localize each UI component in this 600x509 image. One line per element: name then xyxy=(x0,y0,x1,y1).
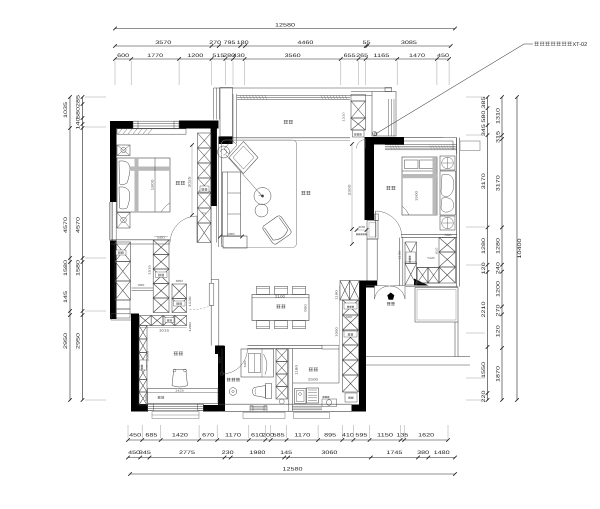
svg-text:1770: 1770 xyxy=(147,53,163,59)
svg-text:900: 900 xyxy=(303,304,307,312)
svg-text:1170: 1170 xyxy=(225,433,241,439)
svg-text:12580: 12580 xyxy=(283,467,303,473)
svg-text:10400: 10400 xyxy=(517,238,523,258)
svg-text:265: 265 xyxy=(356,53,368,59)
svg-text:1130: 1130 xyxy=(397,250,401,260)
svg-text:3560: 3560 xyxy=(285,53,301,59)
svg-text:2000: 2000 xyxy=(146,351,150,362)
svg-text:1800: 1800 xyxy=(151,179,155,190)
svg-text:595: 595 xyxy=(355,433,367,439)
svg-text:3300: 3300 xyxy=(348,184,352,195)
svg-text:1620: 1620 xyxy=(418,433,434,439)
svg-text:1870: 1870 xyxy=(496,366,502,382)
svg-text:900: 900 xyxy=(138,283,145,287)
svg-text:270: 270 xyxy=(209,40,221,46)
svg-text:345: 345 xyxy=(139,450,151,456)
svg-text:4570: 4570 xyxy=(76,217,82,233)
svg-text:400: 400 xyxy=(358,225,366,229)
svg-text:1200: 1200 xyxy=(187,53,203,59)
svg-text:230: 230 xyxy=(222,450,234,456)
svg-text:385: 385 xyxy=(481,96,487,108)
svg-text:1130: 1130 xyxy=(188,296,192,307)
svg-text:685: 685 xyxy=(145,433,157,439)
svg-text:240: 240 xyxy=(496,262,502,274)
svg-text:450: 450 xyxy=(437,53,449,59)
svg-text:600: 600 xyxy=(176,279,184,283)
svg-text:1310: 1310 xyxy=(496,108,502,124)
svg-text:2210: 2210 xyxy=(481,301,487,317)
svg-text:135: 135 xyxy=(396,433,408,439)
svg-text:345: 345 xyxy=(481,124,487,136)
svg-text:1200: 1200 xyxy=(496,281,502,297)
svg-text:600: 600 xyxy=(117,53,129,59)
svg-text:3085: 3085 xyxy=(401,40,417,46)
svg-text:380: 380 xyxy=(417,450,429,456)
svg-text:430: 430 xyxy=(233,53,245,59)
svg-text:285: 285 xyxy=(76,95,82,107)
svg-text:2100: 2100 xyxy=(275,294,286,298)
svg-text:795: 795 xyxy=(224,40,236,46)
svg-text:410: 410 xyxy=(342,433,354,439)
svg-text:220: 220 xyxy=(481,390,487,402)
svg-text:4460: 4460 xyxy=(297,40,313,46)
svg-text:F1: F1 xyxy=(202,211,206,215)
svg-text:450: 450 xyxy=(129,433,141,439)
svg-text:1015: 1015 xyxy=(159,329,170,333)
svg-text:2950: 2950 xyxy=(63,333,69,349)
svg-text:1035: 1035 xyxy=(63,102,69,118)
svg-text:1420: 1420 xyxy=(172,433,188,439)
svg-text:1180: 1180 xyxy=(295,365,299,376)
svg-text:1000: 1000 xyxy=(334,327,338,337)
svg-text:600: 600 xyxy=(346,315,353,319)
svg-text:120: 120 xyxy=(481,262,487,274)
svg-text:3170: 3170 xyxy=(496,175,502,191)
svg-text:900: 900 xyxy=(218,356,222,363)
svg-text:145: 145 xyxy=(280,450,292,456)
svg-text:1470: 1470 xyxy=(409,53,425,59)
svg-text:4570: 4570 xyxy=(63,217,69,233)
svg-text:1515: 1515 xyxy=(147,265,151,275)
svg-text:1170: 1170 xyxy=(294,433,310,439)
svg-text:3025: 3025 xyxy=(188,176,192,187)
svg-text:580: 580 xyxy=(481,110,487,122)
svg-text:810: 810 xyxy=(435,247,439,254)
svg-text:140: 140 xyxy=(76,117,82,129)
svg-text:2500: 2500 xyxy=(308,378,319,382)
svg-text:585: 585 xyxy=(273,433,285,439)
svg-text:500: 500 xyxy=(157,236,165,240)
svg-text:3060: 3060 xyxy=(321,450,337,456)
svg-text:3570: 3570 xyxy=(155,40,171,46)
svg-text:895: 895 xyxy=(324,433,336,439)
svg-text:145: 145 xyxy=(63,291,69,303)
svg-text:120: 120 xyxy=(496,325,502,337)
svg-text:300: 300 xyxy=(444,233,452,237)
svg-text:12580: 12580 xyxy=(275,23,295,29)
svg-text:1200: 1200 xyxy=(188,322,192,332)
svg-text:600: 600 xyxy=(144,394,148,401)
svg-text:55: 55 xyxy=(363,40,371,46)
svg-text:315: 315 xyxy=(496,131,502,143)
svg-text:270: 270 xyxy=(496,304,502,316)
svg-text:3170: 3170 xyxy=(481,173,487,189)
svg-text:1745: 1745 xyxy=(386,450,402,456)
svg-text:1180: 1180 xyxy=(334,290,338,300)
svg-text:655: 655 xyxy=(344,53,356,59)
svg-text:900: 900 xyxy=(227,232,235,236)
svg-text:2775: 2775 xyxy=(179,450,195,456)
svg-text:1580: 1580 xyxy=(63,260,69,276)
svg-text:1500: 1500 xyxy=(415,191,419,202)
svg-text:1980: 1980 xyxy=(249,450,265,456)
svg-text:500: 500 xyxy=(243,360,247,367)
svg-text:1280: 1280 xyxy=(496,238,502,254)
svg-text:670: 670 xyxy=(202,433,214,439)
svg-text:1580: 1580 xyxy=(76,260,82,276)
svg-text:1310: 1310 xyxy=(342,112,346,122)
svg-text:580: 580 xyxy=(76,107,82,119)
svg-text:2950: 2950 xyxy=(76,333,82,349)
svg-text:510: 510 xyxy=(427,256,435,260)
svg-text:180: 180 xyxy=(237,40,249,46)
svg-text:1480: 1480 xyxy=(434,450,450,456)
svg-text:1280: 1280 xyxy=(481,238,487,254)
svg-text:XT-02: XT-02 xyxy=(573,42,588,48)
svg-text:1165: 1165 xyxy=(373,53,389,59)
svg-text:1550: 1550 xyxy=(481,362,487,378)
svg-text:1150: 1150 xyxy=(377,433,393,439)
svg-text:1425: 1425 xyxy=(175,388,185,392)
